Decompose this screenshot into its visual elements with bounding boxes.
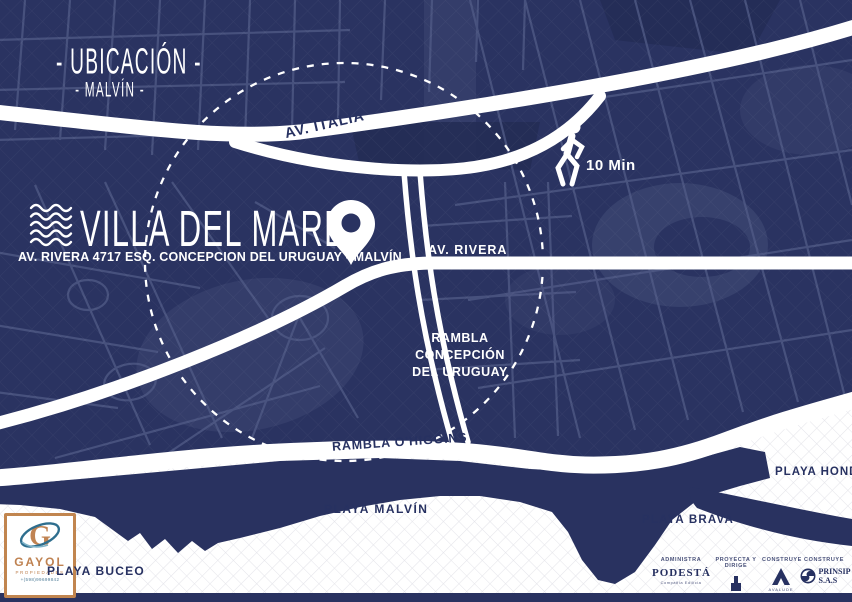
credit-administra: ADMINISTRA PODESTÁ Compañía Edilicia <box>652 557 710 585</box>
credit-proyecta: PROYECTA Y DIRIGE L I B R A I K E N Arqu… <box>712 557 760 602</box>
rambla-concepcion-line1: RAMBLA <box>400 330 520 347</box>
gayol-monogram-icon: G <box>18 518 62 552</box>
architects-name: L I B R A I K E N <box>712 592 760 597</box>
beach-label-playa-honda: PLAYA HONDA <box>775 466 852 479</box>
credit-construye-2: CONSTRUYE PRINSIP S.A.S <box>798 557 850 585</box>
walk-time-label: 10 Min <box>586 158 636 175</box>
project-address: AV. RIVERA 4717 ESQ. CONCEPCION DEL URUG… <box>18 251 402 265</box>
rambla-concepcion-line3: DEL URUGUAY <box>400 364 520 381</box>
section-title: - UBICACIÓN - <box>56 42 164 81</box>
podesta-logo: PODESTÁ <box>652 567 710 579</box>
credit-role: CONSTRUYE <box>798 557 850 563</box>
prinsip-pinwheel-icon <box>800 568 816 584</box>
road-label-rambla-concepcion: RAMBLA CONCEPCIÓN DEL URUGUAY <box>400 330 520 381</box>
section-subtitle: - MALVÍN - <box>54 80 166 103</box>
prinsip-name: PRINSIP S.A.S <box>819 567 849 585</box>
credit-construye-1: CONSTRUYE AVALUDE <box>762 557 800 592</box>
project-title: VILLA DEL MARE <box>80 201 346 257</box>
rambla-concepcion-line2: CONCEPCIÓN <box>400 347 520 364</box>
architects-building-icon <box>728 573 744 591</box>
podesta-tagline: Compañía Edilicia <box>652 580 710 585</box>
location-map-poster: - UBICACIÓN - - MALVÍN - VILLA DEL MARE … <box>0 0 852 602</box>
beach-label-playa-buceo: PLAYA BUCEO <box>47 565 145 578</box>
credit-role: PROYECTA Y DIRIGE <box>712 557 760 569</box>
credit-role: ADMINISTRA <box>652 557 710 563</box>
builder1-name: AVALUDE <box>762 587 800 592</box>
triangle-builder-icon <box>771 567 791 586</box>
beach-label-playa-malvin: PLAYA MALVÍN <box>324 503 428 516</box>
beach-label-playa-brava: PLAYA BRAVA <box>642 514 734 527</box>
architects-tagline: Arquitectos <box>712 598 760 602</box>
agency-logo-card: G GAYOL PROPIEDADES +(598)99699842 <box>4 513 76 598</box>
road-label-av-rivera: AV. RIVERA <box>428 244 507 258</box>
credit-role: CONSTRUYE <box>762 557 800 563</box>
